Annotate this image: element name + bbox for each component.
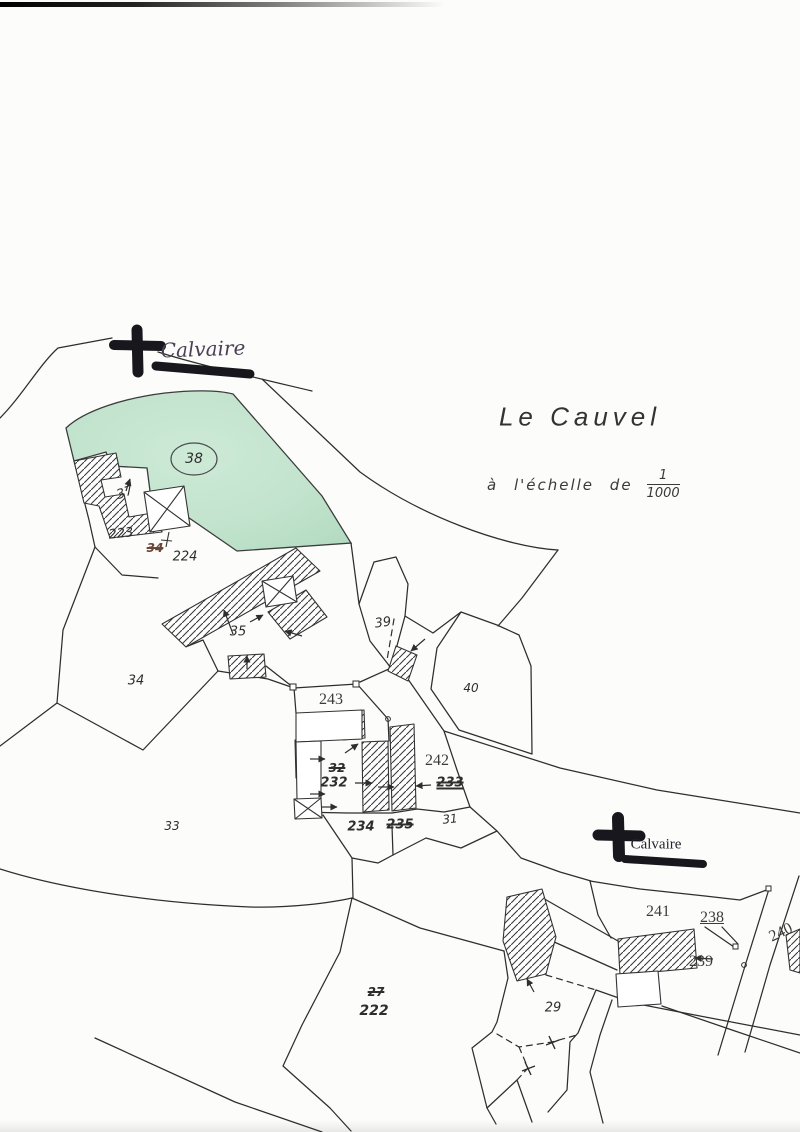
parcel-label-222: 222 [359, 1003, 388, 1019]
parcel-label-232: 232 [320, 776, 347, 791]
scale-fraction-numerator: 1 [647, 468, 680, 485]
parcel-label-39: 39 [374, 614, 392, 631]
parcel-label-223: 223 [108, 525, 134, 543]
pointer-arrows [126, 479, 713, 992]
parcel-label-233-struck: 233 [436, 776, 463, 791]
buildings-hatched [74, 453, 800, 1007]
building-white-court [296, 710, 362, 742]
parcel-label-34-struck: 34 [147, 541, 164, 555]
scale-prefix: à l'échelle de [487, 476, 633, 494]
parcel-label-34: 34 [128, 674, 145, 689]
parcel-label-224: 224 [173, 550, 198, 565]
calvaire-right-underline [625, 859, 703, 864]
parcel-label-35: 35 [230, 625, 247, 640]
boundary-cross-ticks [522, 1036, 559, 1075]
scale-note: à l'échelle de 1 1000 [487, 468, 680, 501]
parcel-39-40-outlines [359, 557, 532, 754]
parcel-label-31: 31 [442, 811, 459, 827]
building-parcel39 [388, 646, 417, 681]
parcel-label-238: 238 [700, 909, 724, 927]
building-242-col [390, 724, 416, 811]
building-232-mid [362, 741, 389, 812]
parcel-label-29: 29 [545, 1001, 562, 1016]
scale-fraction-denominator: 1000 [647, 485, 680, 501]
cadastral-map-sheet: Calvaire Le Cauvel à l'échelle de 1 1000… [0, 0, 800, 1132]
parcel-label-32-struck: 32 [329, 761, 346, 775]
building-white-239 [616, 971, 661, 1007]
calvaire-top-underline [156, 366, 250, 374]
scan-artifact-bottom [0, 1120, 800, 1132]
calvaire-top-label: Calvaire [160, 336, 245, 363]
building-parcel29 [503, 889, 556, 981]
parcel-label-242: 242 [425, 752, 449, 770]
scan-artifact-top [0, 2, 445, 7]
parcel-label-234: 234 [347, 820, 374, 835]
parcel-label-241: 241 [646, 903, 670, 921]
map-title: Le Cauvel [499, 402, 661, 433]
map-drawing [0, 0, 800, 1132]
parcel-label-235-struck: 235 [386, 818, 413, 833]
parcel-label-239: 239 [689, 953, 713, 971]
parcel-label-33: 33 [164, 819, 179, 833]
parcel-label-38: 38 [185, 451, 203, 467]
parcel-label-27-struck: 27 [368, 985, 385, 999]
parcel-label-243: 243 [319, 691, 343, 709]
scale-fraction: 1 1000 [647, 468, 680, 501]
calvaire-right-label: Calvaire [631, 837, 682, 854]
parcel-label-40: 40 [463, 681, 478, 695]
building-parcel239 [618, 929, 697, 975]
building-white-center [296, 741, 321, 800]
